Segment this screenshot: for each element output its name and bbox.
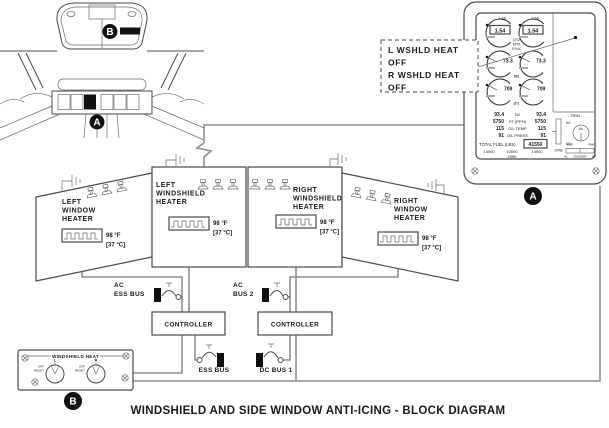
right-knob-label: R bbox=[95, 358, 98, 363]
dc-bus-1: DC BUS 1 bbox=[256, 344, 292, 374]
epr-right-value: 1.54 bbox=[528, 28, 540, 34]
message-line-2: OFF bbox=[388, 58, 407, 68]
right-window-label-2: WINDOW bbox=[394, 207, 428, 214]
right-windshield-panel: RIGHT WINDSHIELD HEATER 98 °F [37 °C] bbox=[248, 153, 346, 267]
fuel-tank-left: 14000 bbox=[483, 149, 495, 154]
itt-label: ITT bbox=[514, 101, 521, 106]
right-window-temp-c: [37 °C] bbox=[422, 246, 441, 252]
dc-bus-1-label: DC BUS 1 bbox=[260, 367, 293, 374]
left-windshield-label-3: HEATER bbox=[156, 199, 187, 206]
epr-left-value: 1.54 bbox=[495, 28, 507, 34]
message-line-3: R WSHLD HEAT bbox=[388, 70, 460, 80]
n1-right-value: 73.3 bbox=[536, 59, 546, 65]
left-window-temp-c: [37 °C] bbox=[106, 243, 125, 249]
trim-title: - TRIM - bbox=[568, 113, 583, 118]
left-window-temp-f: 98 °F bbox=[106, 233, 121, 239]
trim-lwd: LWD bbox=[567, 143, 574, 147]
callout-a-label: A bbox=[93, 118, 100, 129]
ac-ess-bus: AC ESS BUS bbox=[114, 282, 182, 302]
left-windshield-label-1: LEFT bbox=[156, 182, 176, 189]
wire-break-icon bbox=[197, 143, 211, 157]
controller-right: CONTROLLER bbox=[258, 312, 332, 335]
right-window-label-3: HEATER bbox=[394, 215, 425, 222]
oil-temp-label: OIL TEMP bbox=[508, 126, 527, 131]
right-windshield-label-1: RIGHT bbox=[293, 187, 318, 194]
heater-element-icon bbox=[378, 232, 418, 245]
n2-left: 93.4 bbox=[494, 112, 504, 118]
trim-rudder: RUDDER bbox=[574, 155, 588, 159]
epr-mode-1: CRZ bbox=[513, 38, 521, 42]
left-windshield-label-2: WINDSHIELD bbox=[156, 191, 205, 198]
right-window-temp-f: 98 °F bbox=[422, 236, 437, 242]
heater-element-icon bbox=[62, 229, 102, 242]
callout-a-eicas: A bbox=[524, 187, 542, 205]
oil-press-right: 91 bbox=[540, 133, 546, 139]
windshield-heat-panel: WINDSHIELD HEAT L OFF RESET R OFF RESET … bbox=[18, 350, 133, 410]
right-windshield-label-2: WINDSHIELD bbox=[293, 196, 342, 203]
n1-label: N1 bbox=[514, 74, 520, 79]
trim-nl: NL bbox=[564, 155, 568, 159]
total-fuel-value: 41550 bbox=[529, 142, 543, 148]
ground-icon bbox=[330, 153, 346, 167]
block-diagram-page: B A LEFT WINDOW HEATER 98 °F [37 °C] bbox=[0, 0, 609, 428]
epr-left-target: 1.68 bbox=[498, 16, 507, 21]
epr-right-target: 1.68 bbox=[531, 16, 540, 21]
oil-press-left: 91 bbox=[498, 133, 504, 139]
circuit-breaker-icon bbox=[197, 345, 224, 367]
right-windshield-temp-c: [37 °C] bbox=[320, 230, 339, 236]
eicas-display-unit: 1.68 1.68 1.54 1.54 CRZ EPR SYNC 73.3 73… bbox=[464, 2, 606, 205]
trim-ail: AIL bbox=[579, 127, 584, 131]
itt-right-value: 709 bbox=[537, 87, 546, 93]
message-line-4: OFF bbox=[388, 83, 407, 93]
callout-a-panel: A bbox=[90, 115, 105, 130]
ac-ess-bus-label-2: ESS BUS bbox=[114, 291, 145, 298]
controller-left-label: CONTROLLER bbox=[164, 322, 212, 329]
heater-element-icon bbox=[276, 215, 316, 228]
right-window-panel: RIGHT WINDOW HEATER 98 °F [37 °C] bbox=[342, 173, 458, 281]
trim-nu: NU bbox=[566, 121, 571, 125]
itt-left-value: 709 bbox=[504, 87, 513, 93]
cockpit-illustration: B A bbox=[0, 3, 204, 140]
ff-label: FF (PPH) bbox=[509, 119, 527, 124]
callout-b-panel: B bbox=[64, 392, 82, 410]
left-windshield-temp-f: 98 °F bbox=[213, 221, 228, 227]
callout-b-label: B bbox=[69, 397, 76, 408]
left-windshield-temp-c: [37 °C] bbox=[213, 231, 232, 237]
circuit-breaker-icon bbox=[154, 283, 182, 302]
left-window-label-3: HEATER bbox=[62, 216, 93, 223]
right-windshield-temp-f: 98 °F bbox=[320, 220, 335, 226]
left-window-label-2: WINDOW bbox=[62, 208, 96, 215]
trim-stab: STAB bbox=[554, 149, 562, 153]
fuel-tank-right: 14000 bbox=[531, 149, 543, 154]
ess-bus-label: ESS BUS bbox=[199, 367, 230, 374]
left-window-panel: LEFT WINDOW HEATER 98 °F [37 °C] bbox=[36, 173, 152, 281]
ac-ess-bus-label-1: AC bbox=[114, 282, 124, 289]
right-windshield-label-3: HEATER bbox=[293, 204, 324, 211]
trim-rwd: RWD bbox=[588, 143, 596, 147]
heater-element-icon bbox=[169, 217, 209, 230]
n2-label: N2 bbox=[515, 112, 521, 117]
right-knob-reset-label: RESET bbox=[75, 369, 85, 373]
left-knob-reset-label: RESET bbox=[34, 369, 44, 373]
controller-right-label: CONTROLLER bbox=[271, 322, 319, 329]
message-line-1: L WSHLD HEAT bbox=[388, 45, 459, 55]
windshield-heat-title: WINDSHIELD HEAT bbox=[52, 354, 99, 359]
ac-bus-2-label-2: BUS 2 bbox=[233, 291, 254, 298]
ac-bus-2: AC BUS 2 bbox=[233, 282, 290, 302]
overhead-panel-highlight bbox=[120, 28, 140, 35]
ac-bus-2-label-1: AC bbox=[233, 282, 243, 289]
epr-mode-2: EPR bbox=[513, 43, 521, 47]
diagram-title: WINDSHIELD AND SIDE WINDOW ANTI-ICING - … bbox=[131, 405, 506, 417]
controller-left: CONTROLLER bbox=[152, 312, 225, 335]
epr-mode-3: SYNC bbox=[512, 47, 522, 51]
fuel-aux: 2550 bbox=[508, 154, 518, 159]
oil-temp-right: 115 bbox=[538, 126, 546, 132]
oil-temp-left: 115 bbox=[496, 126, 504, 132]
callout-b-label: B bbox=[106, 27, 113, 38]
left-window-label-1: LEFT bbox=[62, 199, 82, 206]
callout-a-label: A bbox=[529, 192, 536, 203]
ess-bus: ESS BUS bbox=[197, 345, 230, 374]
callout-b-overhead: B bbox=[103, 24, 118, 39]
left-windshield-panel: LEFT WINDSHIELD HEATER 98 °F [37 °C] bbox=[152, 154, 246, 267]
ground-icon bbox=[166, 154, 184, 167]
main-panel-highlight bbox=[84, 95, 96, 110]
total-fuel-label: TOTAL FUEL (LBS) bbox=[479, 142, 516, 147]
n2-right: 93.4 bbox=[536, 112, 546, 118]
right-window-label-1: RIGHT bbox=[394, 198, 419, 205]
circuit-breaker-icon bbox=[262, 283, 290, 302]
oil-press-label: OIL PRESS bbox=[507, 133, 528, 138]
ff-left: 5750 bbox=[493, 119, 504, 125]
ff-right: 5750 bbox=[535, 119, 546, 125]
circuit-breaker-icon bbox=[256, 344, 283, 367]
